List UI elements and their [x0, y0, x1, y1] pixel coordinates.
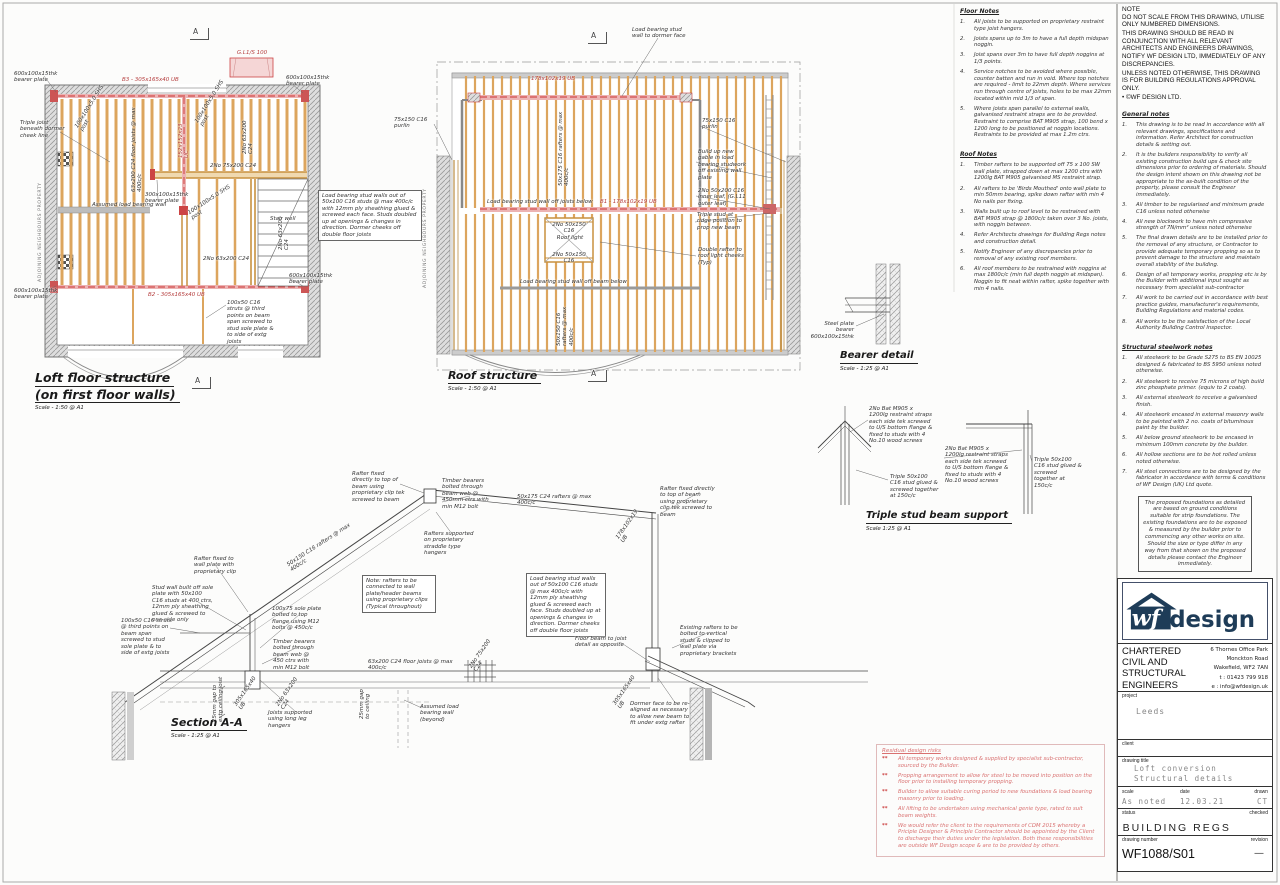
triple-stud-title: Triple stud beam support Scale 1:25 @ A1: [866, 510, 1012, 532]
text-line: UNLESS NOTED OTHERWISE, THIS DRAWING IS …: [1122, 70, 1268, 93]
logo-wf: wf: [1132, 606, 1164, 632]
drawing-number-label: drawing number: [1122, 837, 1268, 843]
status-value: BUILDING REGS: [1122, 822, 1232, 834]
title-text: Loft floor structure: [35, 370, 174, 387]
text-line: Wakefield, WF2 7AN: [1210, 664, 1268, 673]
note-item: **Builder to allow suitable curing perio…: [882, 789, 1099, 802]
scale-value: As noted: [1122, 797, 1172, 806]
drawing-number-value: WF1088/S01: [1122, 847, 1268, 861]
note-item: 4.All new blockwork to have min compress…: [1122, 219, 1268, 232]
note-item: **All lifting to be undertaken using mec…: [882, 806, 1099, 819]
scale-label: scale: [1122, 789, 1172, 795]
roof-notes-heading: Roof Notes: [960, 151, 1112, 158]
scale-text: Scale 1:25 @ A1: [866, 526, 1012, 532]
note-item: 2.It is the builders responsibility to v…: [1122, 152, 1268, 198]
scale-date-drawn-row: scale As noted date 12.03.21 drawn CT: [1118, 786, 1272, 808]
scale-cell: scale As noted: [1118, 788, 1176, 807]
logo-row: wf design: [1118, 579, 1272, 643]
status-row: status checked BUILDING REGS: [1118, 808, 1272, 835]
company-row: CHARTEREDCIVIL ANDSTRUCTURALENGINEERS 6 …: [1118, 643, 1272, 691]
text-line: STRUCTURAL: [1122, 668, 1186, 679]
company-logo: wf design: [1122, 582, 1268, 640]
note-title: NOTE: [1122, 6, 1268, 14]
note-item: 2.Joists spans up to 3m to have a full d…: [960, 36, 1112, 49]
loft-floor-plan: [44, 58, 320, 381]
note-item: 4.Refer Architects drawings for Building…: [960, 232, 1112, 245]
note-item: 7.All steel connections are to be design…: [1122, 469, 1268, 489]
note-item: 6.All hollow sections are to be hot roll…: [1122, 452, 1268, 465]
roof-structure-plan: [434, 38, 800, 376]
text-line: t : 01423 799 918: [1210, 674, 1268, 683]
note-item: 1.Timber rafters to be supported off 75 …: [960, 162, 1112, 182]
client-row: client: [1118, 739, 1272, 756]
note-item: **All temporary works designed & supplie…: [882, 756, 1099, 769]
title-text: (on first floor walls): [35, 387, 180, 404]
client-label: client: [1122, 741, 1268, 747]
note-item: **Propping arrangement to allow for stee…: [882, 773, 1099, 786]
scale-text: Scale - 1:50 @ A1: [35, 405, 180, 411]
loft-plan-title: Loft floor structure (on first floor wal…: [35, 370, 180, 411]
general-notes-heading: General notes: [1122, 111, 1268, 118]
note-item: 2.All steelwork to receive 75 microns of…: [1122, 379, 1268, 392]
drawn-label: drawn: [1238, 789, 1268, 795]
drawing-title-row: drawing title Loft conversion Structural…: [1118, 756, 1272, 786]
company-address: 6 Thornes Office ParkMonckton RoadWakefi…: [1210, 646, 1268, 689]
roof-plan-title: Roof structure Scale - 1:50 @ A1: [448, 369, 541, 392]
risks-heading: Residual design risks: [882, 748, 1099, 754]
floor-notes-heading: Floor Notes: [960, 8, 1112, 15]
bearer-detail-title: Bearer detail Scale - 1:25 @ A1: [840, 350, 918, 372]
note-item: 7.All work to be carried out in accordan…: [1122, 295, 1268, 315]
date-cell: date 12.03.21: [1176, 788, 1234, 807]
checked-label: checked: [1249, 810, 1268, 816]
roof-notes-list: 1.Timber rafters to be supported off 75 …: [960, 162, 1112, 292]
note-item: 1.All joists to be supported on propriet…: [960, 19, 1112, 32]
floor-notes-list: 1.All joists to be supported on propriet…: [960, 19, 1112, 139]
note-item: 4.Service notches to be avoided where po…: [960, 69, 1112, 102]
note-item: **We would refer the client to the requi…: [882, 823, 1099, 849]
note-item: 1.All steelwork to be Grade S275 to BS E…: [1122, 355, 1268, 375]
note-item: 5.Where joists span parallel to external…: [960, 106, 1112, 139]
drawn-value: CT: [1238, 797, 1268, 806]
text-line: Monckton Road: [1210, 655, 1268, 664]
drawing-title-value: Structural details: [1134, 774, 1268, 784]
date-label: date: [1180, 789, 1230, 795]
date-value: 12.03.21: [1180, 797, 1230, 806]
drawn-cell: drawn CT: [1234, 788, 1272, 807]
title-block: wf design CHARTEREDCIVIL ANDSTRUCTURALEN…: [1117, 578, 1273, 872]
note-item: 3.Walls built up to roof level to be res…: [960, 209, 1112, 229]
note-item: 3.All timber to be regularised and minim…: [1122, 202, 1268, 215]
steelwork-notes-heading: Structural steelwork notes: [1122, 344, 1268, 351]
section-title: Section A-A Scale - 1:25 @ A1: [171, 716, 247, 739]
title-text: Bearer detail: [840, 350, 918, 364]
triple-stud-detail: [818, 406, 1032, 514]
note-item: 3.All external steelwork to receive a ga…: [1122, 395, 1268, 408]
note-item: 5.Notify Engineer of any discrepancies p…: [960, 249, 1112, 262]
text-line: CHARTERED: [1122, 646, 1186, 657]
note-item: 3.Joist spans over 3m to have full depth…: [960, 52, 1112, 65]
risks-list: **All temporary works designed & supplie…: [882, 756, 1099, 849]
foundation-note-box: The proposed foundations as detailed are…: [1138, 496, 1252, 573]
note-item: 1.This drawing is to be read in accordan…: [1122, 122, 1268, 148]
drawing-number-row: drawing number revision WF1088/S01 —: [1118, 835, 1272, 863]
text-line: DO NOT SCALE FROM THIS DRAWING, UTILISE …: [1122, 14, 1268, 29]
note-item: 6.All roof members to be restrained with…: [960, 266, 1112, 292]
scale-text: Scale - 1:50 @ A1: [448, 386, 541, 392]
note-item: 6.Design of all temporary works, proppin…: [1122, 272, 1268, 292]
title-text: Section A-A: [171, 716, 247, 731]
general-notes-list: 1.This drawing is to be read in accordan…: [1122, 122, 1268, 332]
text-line: CIVIL AND: [1122, 657, 1186, 668]
company-name: CHARTEREDCIVIL ANDSTRUCTURALENGINEERS: [1122, 646, 1186, 689]
bearer-detail: [845, 264, 900, 344]
note-item: 5.All below ground steelwork to be encas…: [1122, 435, 1268, 448]
title-text: Triple stud beam support: [866, 510, 1012, 524]
note-item: 2.All rafters to be 'Birds Mouthed' onto…: [960, 186, 1112, 206]
note-item: 8.All works to be the satisfaction of th…: [1122, 319, 1268, 332]
steelwork-notes-list: 1.All steelwork to be Grade S275 to BS E…: [1122, 355, 1268, 488]
scale-text: Scale - 1:25 @ A1: [840, 366, 918, 372]
residual-design-risks: Residual design risks **All temporary wo…: [876, 744, 1105, 857]
note-item: 4.All steelwork encased in external maso…: [1122, 412, 1268, 432]
logo-design: design: [1169, 607, 1255, 633]
title-text: Roof structure: [448, 369, 541, 384]
project-row: project Leeds: [1118, 691, 1272, 739]
project-label: project: [1122, 693, 1268, 699]
text-line: 6 Thornes Office Park: [1210, 646, 1268, 655]
text-line: THIS DRAWING SHOULD BE READ IN CONJUNCTI…: [1122, 30, 1268, 68]
revision-label: revision: [1251, 837, 1268, 843]
drawing-title-value: Loft conversion: [1134, 764, 1268, 774]
text-line: ENGINEERS: [1122, 680, 1186, 691]
general-notes-column: NOTE DO NOT SCALE FROM THIS DRAWING, UTI…: [1122, 6, 1268, 644]
project-value: Leeds: [1136, 707, 1268, 716]
wfdesign-logo-icon: wf design: [1125, 584, 1265, 638]
scale-text: Scale - 1:25 @ A1: [171, 733, 247, 739]
status-label: status: [1122, 810, 1268, 816]
floor-roof-notes-column: Floor Notes 1.All joists to be supported…: [960, 6, 1112, 296]
drawing-sheet: 600x100x15thk bearer plate600x100x15thk …: [0, 0, 1280, 885]
note-paragraph: DO NOT SCALE FROM THIS DRAWING, UTILISE …: [1122, 14, 1268, 101]
note-item: 5.The final drawn details are to be inst…: [1122, 235, 1268, 268]
text-line: • ©WF DESIGN LTD.: [1122, 94, 1268, 102]
revision-value: —: [1254, 848, 1264, 859]
